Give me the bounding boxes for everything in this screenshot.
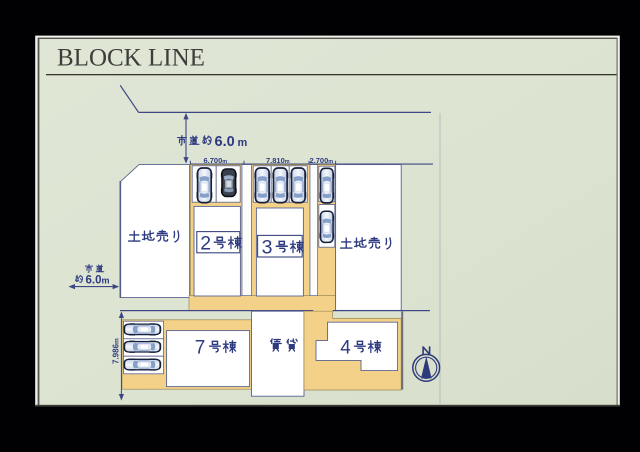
svg-text:4: 4 — [340, 338, 351, 359]
svg-text:3: 3 — [262, 237, 273, 259]
svg-text:2: 2 — [200, 233, 211, 255]
svg-text:BLOCK LINE: BLOCK LINE — [57, 45, 205, 72]
svg-text:6.0m: 6.0m — [86, 275, 110, 287]
svg-text:7: 7 — [195, 338, 206, 359]
svg-text:7.986m: 7.986m — [112, 338, 121, 364]
svg-text:m: m — [238, 137, 248, 149]
svg-text:6.0: 6.0 — [215, 134, 235, 150]
